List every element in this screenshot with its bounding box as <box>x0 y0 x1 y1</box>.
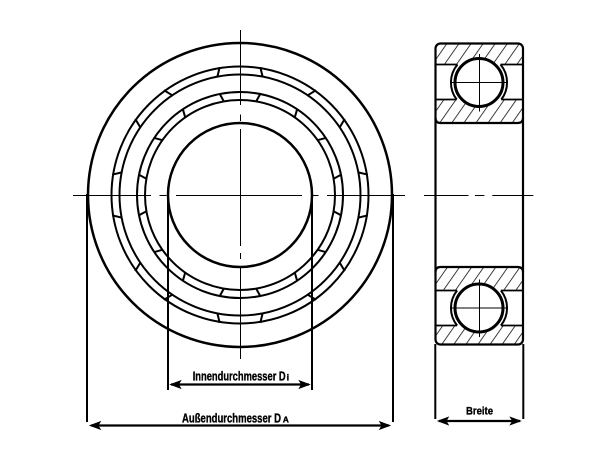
svg-text:i: i <box>287 373 290 383</box>
svg-text:Außendurchmesser D: Außendurchmesser D <box>182 410 281 425</box>
svg-text:Innendurchmesser D: Innendurchmesser D <box>193 369 286 384</box>
svg-text:Breite: Breite <box>466 406 493 418</box>
svg-text:A: A <box>283 414 289 424</box>
